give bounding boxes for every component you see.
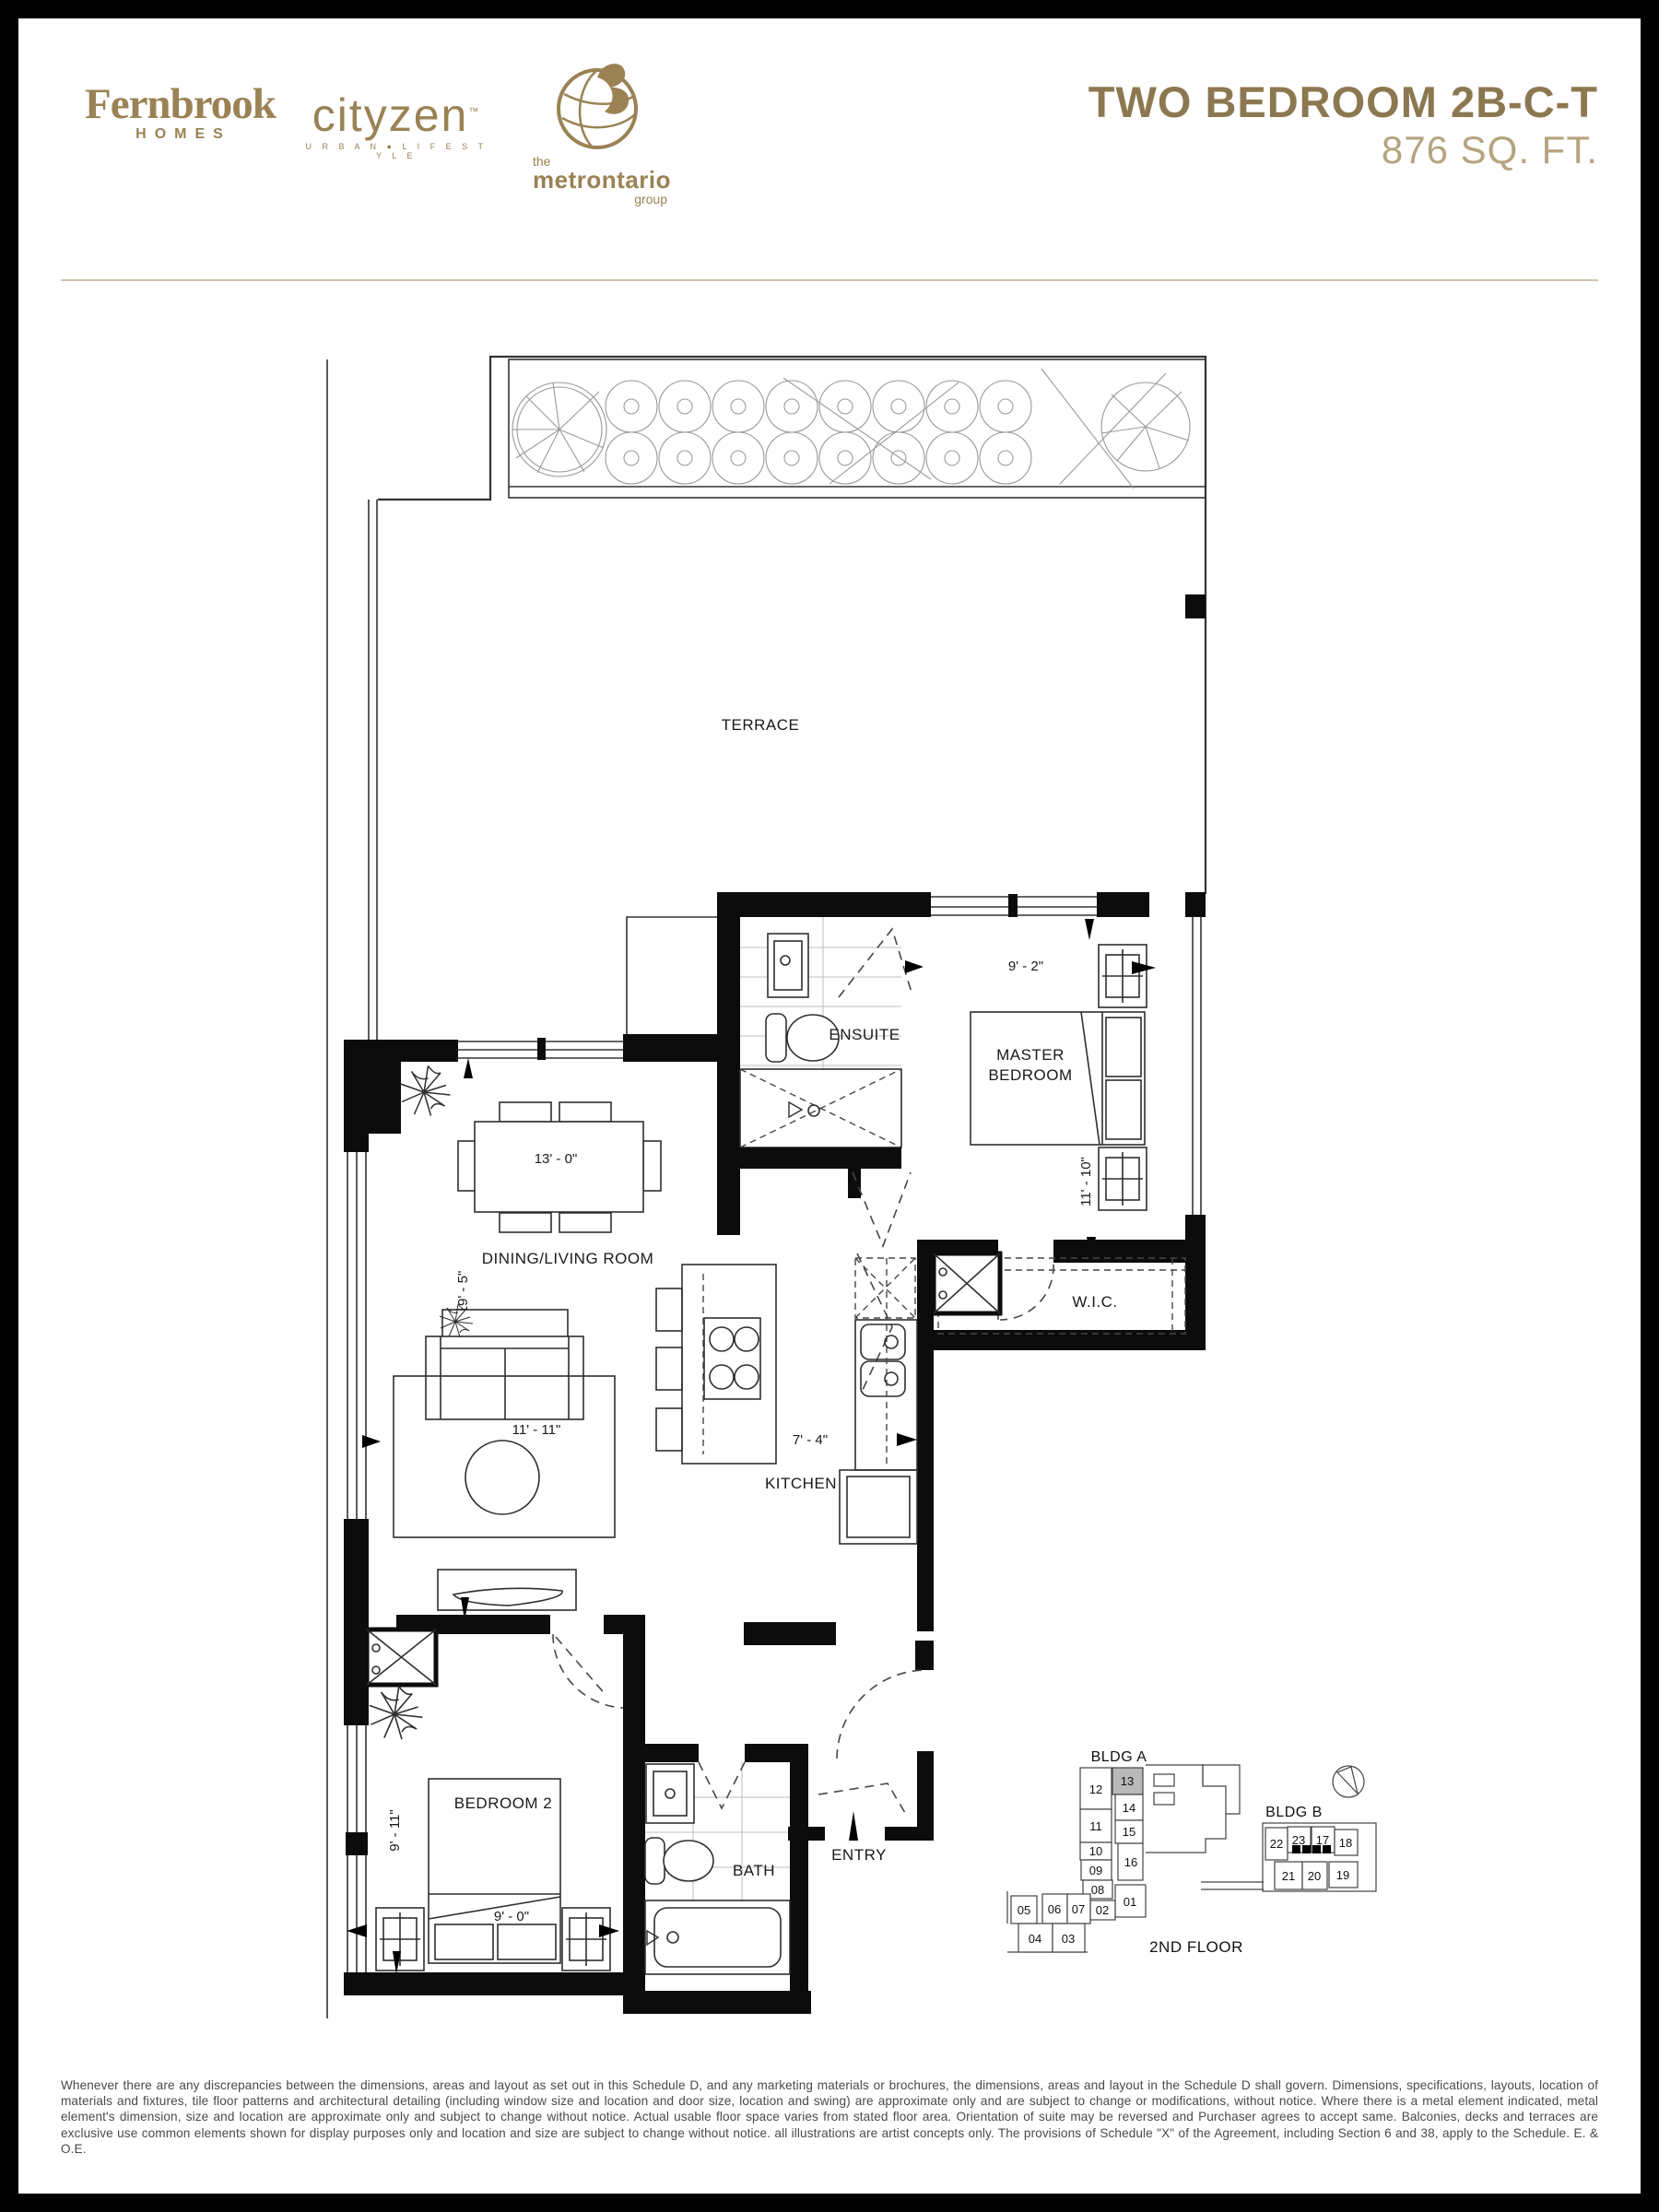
dim-bedroom2-height: 9' - 11" xyxy=(387,1809,403,1851)
room-label-entry: ENTRY xyxy=(831,1846,887,1864)
room-label-kitchen: KITCHEN xyxy=(765,1475,837,1492)
keyplan-unit-19: 19 xyxy=(1336,1868,1349,1882)
room-label-master-1: MASTER xyxy=(996,1046,1065,1064)
refrigerator xyxy=(840,1470,917,1544)
disclaimer-text: Whenever there are any discrepancies bet… xyxy=(61,2077,1598,2158)
keyplan-unit-10: 10 xyxy=(1089,1844,1102,1858)
dim-kitchen: 7' - 4" xyxy=(793,1432,828,1448)
dim-master-height: 11' - 10" xyxy=(1078,1157,1094,1206)
keyplan-unit-17: 17 xyxy=(1316,1833,1329,1847)
room-label-bath: BATH xyxy=(733,1862,775,1879)
dim-dining-width: 13' - 0" xyxy=(535,1151,578,1167)
bath-toilet xyxy=(645,1838,713,1884)
room-label-wic: W.I.C. xyxy=(1072,1293,1117,1311)
bathroom: BATH xyxy=(623,1744,811,2014)
room-label-dining: DINING/LIVING ROOM xyxy=(482,1250,654,1267)
keyplan-unit-03: 03 xyxy=(1062,1932,1075,1946)
keyplan-unit-11: 11 xyxy=(1089,1819,1102,1833)
keyplan-unit-16: 16 xyxy=(1124,1855,1137,1869)
dim-bedroom2-width: 9' - 0" xyxy=(494,1909,529,1924)
compass-icon xyxy=(1333,1766,1364,1797)
master-bedroom: 9' - 2" 11' - 10" MASTER BEDROOM xyxy=(931,945,1206,1263)
bedroom-2: BEDROOM 2 9' - 11" 9' - 0" xyxy=(344,1687,645,1995)
floorplan-page: Fernbrook HOMES cityzen™ U R B A N ● L I… xyxy=(0,0,1659,2212)
keyplan-unit-15: 15 xyxy=(1123,1825,1135,1839)
keyplan-unit-21: 21 xyxy=(1282,1869,1295,1883)
dim-living: 11' - 11" xyxy=(512,1422,561,1438)
plant-icon xyxy=(370,1687,423,1740)
shrub-icons xyxy=(606,369,1166,488)
keyplan-unit-04: 04 xyxy=(1029,1932,1041,1946)
keyplan-unit-22: 22 xyxy=(1270,1837,1283,1851)
utility-closet xyxy=(934,1253,1000,1313)
entry: ENTRY xyxy=(788,1641,934,1864)
keyplan-unit-08: 08 xyxy=(1091,1883,1104,1897)
keyplan-unit-18: 18 xyxy=(1339,1836,1352,1850)
tv-console xyxy=(438,1570,576,1620)
keyplan-unit-13: 13 xyxy=(1121,1774,1134,1788)
key-plan: BLDG A BLDG B 2ND FLOOR xyxy=(1007,1749,1376,1956)
keyplan-unit-07: 07 xyxy=(1072,1902,1085,1916)
ensuite-sink xyxy=(768,934,808,997)
bath-sink xyxy=(646,1764,694,1823)
plant-icon xyxy=(401,1066,451,1116)
kitchen: 7' - 4" KITCHEN xyxy=(656,1240,1000,1841)
keyplan-unit-02: 02 xyxy=(1096,1903,1109,1917)
dining-living-room: 13' - 0" 19' - 5" DINING/LIVING ROOM 11'… xyxy=(394,1066,661,1621)
kitchen-island xyxy=(656,1265,776,1464)
room-label-terrace: TERRACE xyxy=(722,716,800,734)
ensuite-toilet xyxy=(766,1014,839,1062)
keyplan-unit-20: 20 xyxy=(1308,1869,1321,1883)
coffee-table xyxy=(465,1441,539,1514)
keyplan-unit-14: 14 xyxy=(1123,1801,1135,1815)
bathtub xyxy=(645,1900,790,1974)
ensuite-shower xyxy=(740,1069,901,1147)
keyplan-unit-06: 06 xyxy=(1048,1902,1061,1916)
laundry-closet xyxy=(367,1630,436,1685)
keyplan-unit-12: 12 xyxy=(1089,1783,1102,1796)
west-windows xyxy=(344,1152,381,1972)
keyplan-unit-05: 05 xyxy=(1018,1903,1030,1917)
keyplan-floor-label: 2ND FLOOR xyxy=(1149,1938,1243,1956)
room-label-ensuite: ENSUITE xyxy=(829,1026,900,1043)
keyplan-unit-23: 23 xyxy=(1292,1833,1305,1847)
room-label-master-2: BEDROOM xyxy=(988,1066,1072,1084)
sofa xyxy=(426,1310,583,1419)
master-east-window xyxy=(1185,917,1206,1242)
tree-icon xyxy=(512,382,606,477)
kitchen-sink xyxy=(861,1324,905,1396)
dim-master-width: 9' - 2" xyxy=(1008,959,1043,974)
floor-plan: TERRACE xyxy=(0,0,1659,2212)
room-label-bedroom2: BEDROOM 2 xyxy=(454,1794,553,1812)
keyplan-unit-09: 09 xyxy=(1089,1864,1102,1877)
hall-walls xyxy=(367,1615,836,1995)
planter-box xyxy=(509,359,1206,498)
keyplan-bldg-b-label: BLDG B xyxy=(1265,1805,1323,1820)
dining-table xyxy=(458,1102,661,1232)
keyplan-unit-01: 01 xyxy=(1124,1895,1136,1909)
keyplan-bldg-a-label: BLDG A xyxy=(1091,1749,1147,1765)
